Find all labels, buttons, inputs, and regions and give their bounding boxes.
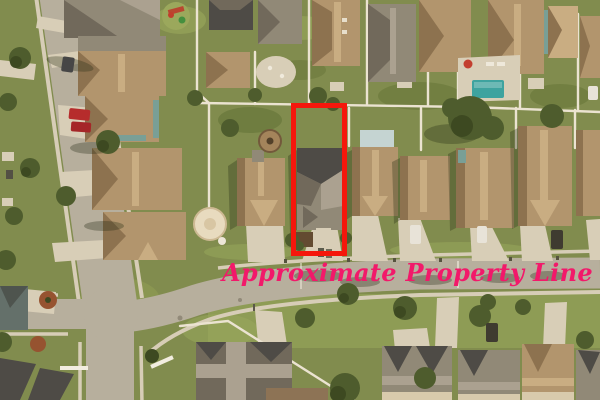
photo-tint (0, 0, 600, 400)
neighborhood-scene (0, 0, 600, 400)
aerial-photo: Approximate Property Line (0, 0, 600, 400)
